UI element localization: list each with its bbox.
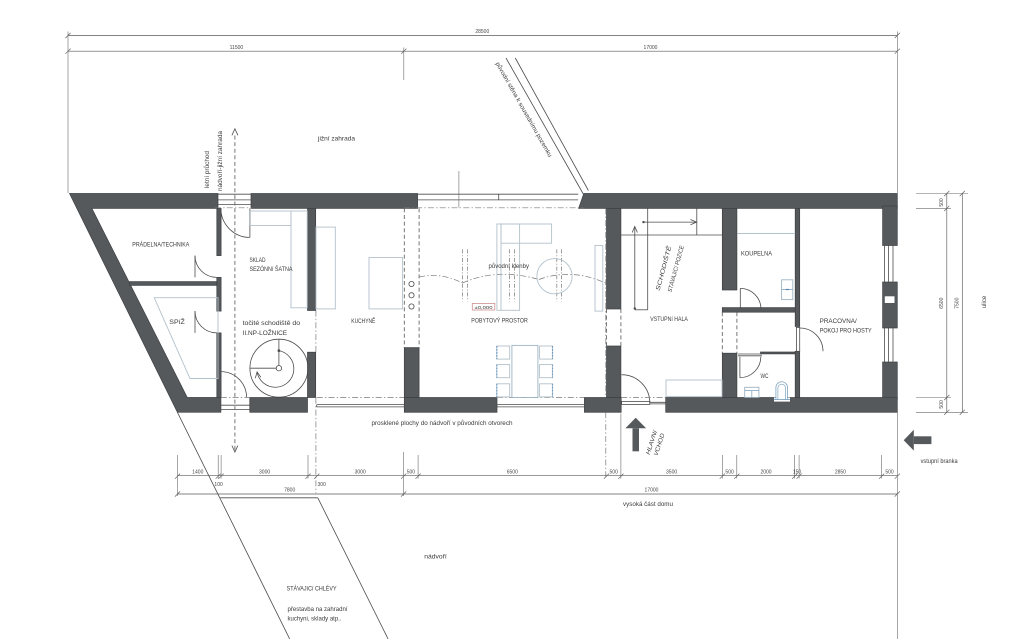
svg-text:STÁVAJíCí CHLÉVY: STÁVAJíCí CHLÉVY <box>287 586 337 593</box>
svg-text:KUCHYNĚ: KUCHYNĚ <box>351 317 375 325</box>
svg-text:300: 300 <box>318 482 327 488</box>
svg-text:prosklené plochy do nádvoří v: prosklené plochy do nádvoří v původních … <box>372 420 513 427</box>
svg-text:±0,000: ±0,000 <box>475 305 494 310</box>
svg-text:100: 100 <box>214 482 223 488</box>
svg-text:SPíŽ: SPíŽ <box>169 318 185 326</box>
svg-text:7500: 7500 <box>955 297 961 308</box>
svg-text:3000: 3000 <box>259 470 270 476</box>
svg-text:ulice: ulice <box>982 295 988 308</box>
svg-text:3500: 3500 <box>666 470 677 476</box>
svg-text:II.NP-LOŽNICE: II.NP-LOŽNICE <box>243 329 288 337</box>
svg-text:POKOJ PRO HOSTY: POKOJ PRO HOSTY <box>820 329 872 335</box>
svg-text:PRACOVNA/: PRACOVNA/ <box>820 319 857 325</box>
svg-text:nádvoří: nádvoří <box>424 554 447 560</box>
svg-text:kuchyni, sklady atp..: kuchyni, sklady atp.. <box>288 617 342 623</box>
svg-text:točité schodiště do: točité schodiště do <box>243 321 301 327</box>
svg-text:jižní zahrada: jižní zahrada <box>317 137 356 143</box>
svg-text:17000: 17000 <box>644 45 658 51</box>
svg-text:POBYTOVÝ PROSTOR: POBYTOVÝ PROSTOR <box>471 317 528 324</box>
svg-text:500: 500 <box>407 470 416 476</box>
svg-text:PRÁDELNA/TECHNIKA: PRÁDELNA/TECHNIKA <box>132 242 189 249</box>
svg-text:KOUPELNA: KOUPELNA <box>741 251 772 257</box>
svg-text:6500: 6500 <box>939 297 945 308</box>
svg-text:6500: 6500 <box>507 470 518 476</box>
svg-text:3000: 3000 <box>355 470 366 476</box>
svg-text:11500: 11500 <box>230 45 244 51</box>
svg-text:500: 500 <box>885 470 894 476</box>
svg-text:letní průchod: letní průchod <box>204 151 211 188</box>
svg-text:500: 500 <box>939 198 945 207</box>
svg-text:1400: 1400 <box>192 470 203 476</box>
svg-text:SKLAD: SKLAD <box>250 258 267 264</box>
svg-text:500: 500 <box>725 470 734 476</box>
svg-text:VSTUPNí HALA: VSTUPNí HALA <box>650 317 688 323</box>
svg-text:500: 500 <box>939 400 945 409</box>
svg-text:150: 150 <box>793 470 802 476</box>
svg-text:2000: 2000 <box>760 470 771 476</box>
svg-text:vysoká část domu: vysoká část domu <box>623 502 673 508</box>
svg-text:nádvoří-jižní zahrada: nádvoří-jižní zahrada <box>218 130 224 191</box>
svg-text:500: 500 <box>610 470 619 476</box>
svg-text:vstupní branka: vstupní branka <box>921 459 959 465</box>
svg-text:28500: 28500 <box>475 29 489 35</box>
svg-text:SEZÓNNí ŠATNA: SEZÓNNí ŠATNA <box>250 266 293 273</box>
svg-text:WC: WC <box>761 374 770 380</box>
svg-text:17000: 17000 <box>645 487 659 493</box>
svg-text:2850: 2850 <box>835 470 846 476</box>
svg-text:původní klenby: původní klenby <box>489 263 530 270</box>
svg-text:přestavba na zahradní: přestavba na zahradní <box>288 607 348 613</box>
svg-text:7800: 7800 <box>284 488 295 494</box>
